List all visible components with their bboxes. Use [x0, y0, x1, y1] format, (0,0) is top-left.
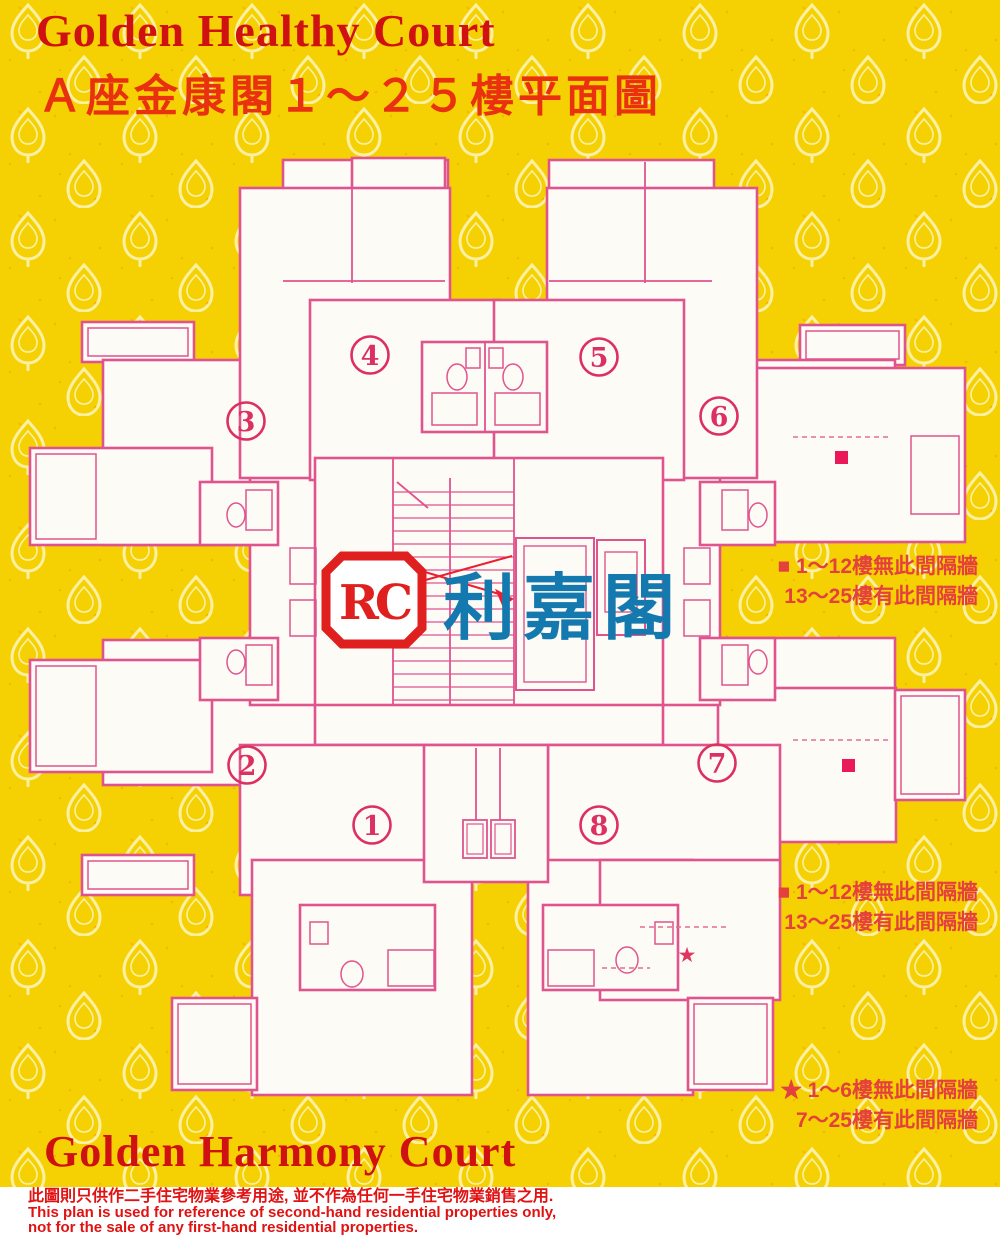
- svg-text:7: 7: [708, 749, 727, 780]
- legend-note-1-line-1: ■ 1～12樓無此間隔牆: [777, 552, 978, 582]
- legend-note-3: ★ 1～6樓無此間隔牆 7～25樓有此間隔牆: [781, 1076, 978, 1136]
- disclaimer-line-en-1: This plan is used for reference of secon…: [28, 1205, 1000, 1220]
- legend-note-1-line-2: 13～25樓有此間隔牆: [777, 582, 978, 612]
- legend-note-3-line-2: 7～25樓有此間隔牆: [781, 1106, 978, 1136]
- partition-marker-square-2: [842, 759, 855, 772]
- disclaimer-line-en-2: not for the sale of any first-hand resid…: [28, 1220, 1000, 1235]
- building-title-harmony: Golden Harmony Court: [44, 1126, 516, 1177]
- svg-text:1: 1: [363, 811, 382, 842]
- legend-note-2-line-2: 13～25樓有此間隔牆: [777, 908, 978, 938]
- svg-text:6: 6: [710, 402, 729, 433]
- legend-note-2-line-1: ■ 1～12樓無此間隔牆: [777, 878, 978, 908]
- floor-plan: ★ 1 2 3 4 5: [0, 0, 1000, 1235]
- legend-note-1: ■ 1～12樓無此間隔牆 13～25樓有此間隔牆: [777, 552, 978, 612]
- building-title-en: Golden Healthy Court: [36, 4, 496, 57]
- legend-note-3-line-1: ★ 1～6樓無此間隔牆: [781, 1076, 978, 1106]
- svg-text:3: 3: [237, 407, 256, 438]
- disclaimer-line-zh: 此圖則只供作二手住宅物業參考用途, 並不作為任何一手住宅物業銷售之用.: [28, 1189, 1000, 1205]
- legend-note-2: ■ 1～12樓無此間隔牆 13～25樓有此間隔牆: [777, 878, 978, 938]
- partition-marker-star: ★: [678, 944, 697, 967]
- partition-marker-square-1: [835, 451, 848, 464]
- flyer-page: ★ 1 2 3 4 5: [0, 0, 1000, 1235]
- building-title-zh: Ａ座金康閣１～２５樓平面圖: [38, 60, 662, 124]
- svg-text:5: 5: [590, 343, 609, 374]
- watermark: RC 利嘉閣: [326, 556, 683, 649]
- disclaimer-bar: 此圖則只供作二手住宅物業參考用途, 並不作為任何一手住宅物業銷售之用. This…: [0, 1187, 1000, 1235]
- svg-text:4: 4: [361, 341, 380, 372]
- watermark-brand-text: 利嘉閣: [443, 569, 683, 649]
- rc-logo-letters: RC: [339, 575, 411, 631]
- svg-text:2: 2: [238, 751, 257, 782]
- svg-text:8: 8: [590, 811, 609, 842]
